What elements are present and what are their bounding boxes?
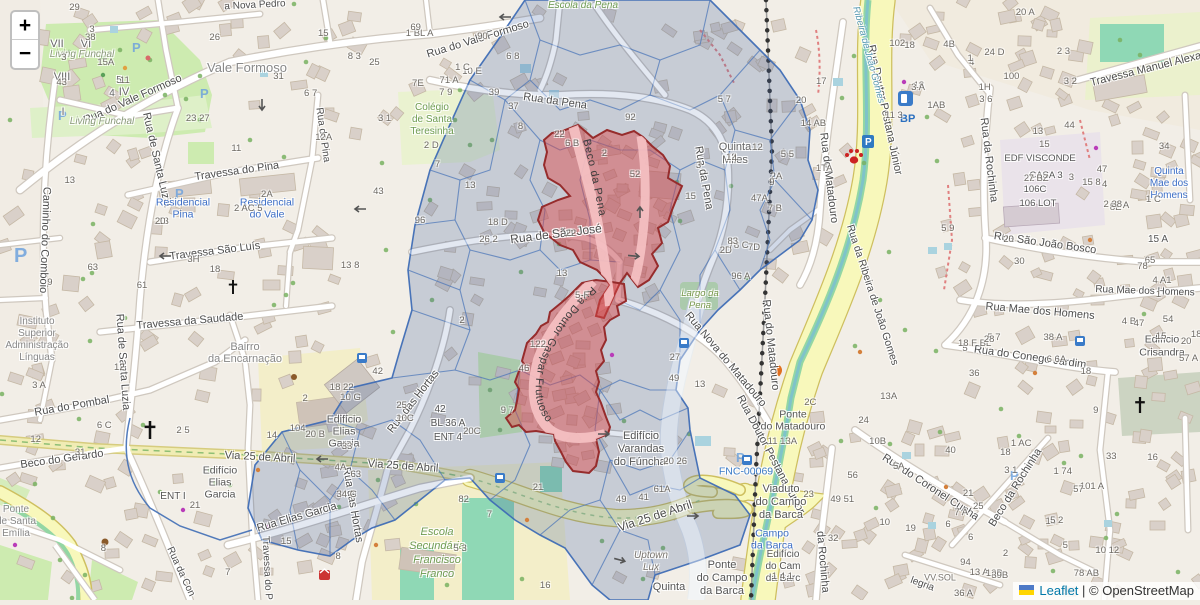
svg-text:P: P <box>14 245 27 267</box>
svg-text:P: P <box>200 86 209 101</box>
svg-text:P: P <box>132 40 141 55</box>
svg-text:P: P <box>865 137 872 148</box>
